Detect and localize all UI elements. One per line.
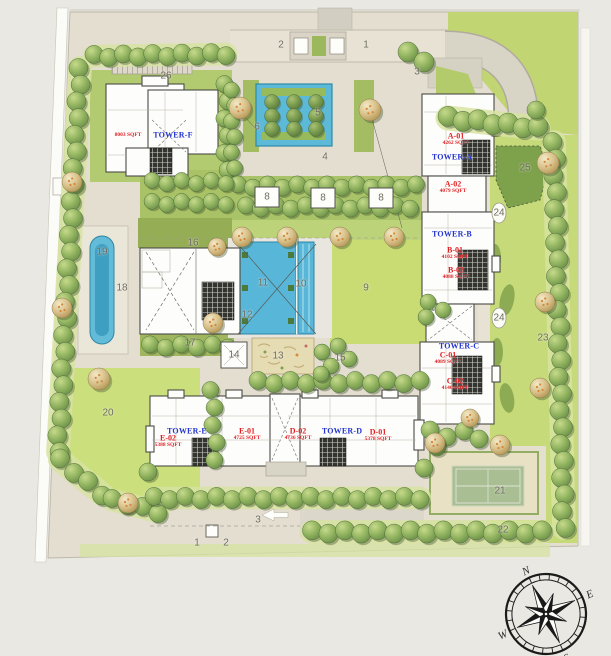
east-boundary-road	[581, 28, 590, 546]
site-plan-canvas: N E S W 12345688891011121314151617181920…	[0, 0, 611, 656]
site-plan-drawing: N E S W	[0, 0, 611, 656]
path-node-24	[492, 308, 506, 328]
clubhouse-building	[140, 248, 240, 334]
pavilion-8	[311, 188, 335, 208]
central-lawn-9	[330, 240, 430, 344]
tower-abc-building	[420, 94, 500, 424]
path-node-24	[492, 203, 506, 223]
pavilion-14	[221, 342, 247, 368]
south-verge	[80, 544, 550, 557]
entry-stub	[318, 8, 352, 30]
entrance-gate-canopy	[290, 32, 346, 60]
pavilion-8	[369, 188, 393, 208]
tower-de-building	[146, 390, 424, 476]
sand-play-area	[252, 338, 314, 374]
swimming-pool	[228, 238, 332, 338]
reflecting-pool	[78, 226, 128, 354]
south-gate	[206, 525, 218, 537]
pavilion-8	[255, 187, 279, 207]
site-base	[0, 0, 611, 656]
